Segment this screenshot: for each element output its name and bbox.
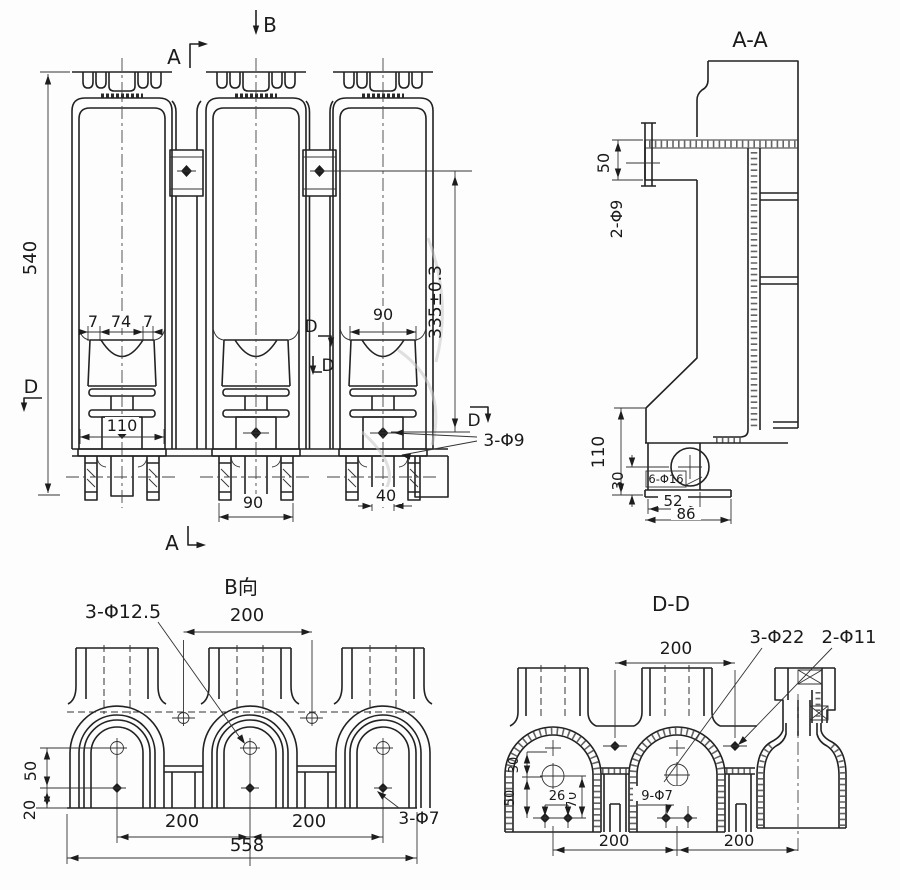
dd-bell xyxy=(757,668,846,854)
label-2phi9: 2-Φ9 xyxy=(607,200,626,239)
dim-90-bell: 90 xyxy=(373,305,393,324)
dim-50-aa: 50 xyxy=(594,153,613,173)
label-3phi22: 3-Φ22 xyxy=(749,627,804,648)
dim-40: 40 xyxy=(376,486,396,505)
dim-7-right: 7 xyxy=(143,312,153,331)
pole-3 xyxy=(327,58,439,508)
marker-b: B xyxy=(263,13,277,37)
section-dd-view: D-D 200 3-Φ22 2-Φ11 30 5 xyxy=(503,592,877,856)
dim-200-top-dd: 200 xyxy=(660,639,692,659)
dim-50-dd: 50 xyxy=(503,790,518,807)
front-view: B A A D D D D 540 7 74 7 110 90 xyxy=(20,10,525,555)
dim-200-bottom-left: 200 xyxy=(165,811,199,832)
dd-post-1 xyxy=(510,665,596,726)
dim-335: 335±0.3 xyxy=(426,265,446,339)
dim-200-top-b: 200 xyxy=(230,605,264,626)
title-dd: D-D xyxy=(652,592,690,616)
dim-90-foot: 90 xyxy=(243,493,263,512)
dim-540: 540 xyxy=(20,241,41,275)
link-web-2 xyxy=(303,101,336,449)
pole-2 xyxy=(200,58,312,508)
section-aa-view: A-A 50 2-Φ9 110 30 6-Φ16 52 86 xyxy=(589,28,798,524)
marker-d-left: D xyxy=(24,376,39,398)
label-3phi125: 3-Φ12.5 xyxy=(85,601,161,623)
b-arch-1 xyxy=(70,706,164,808)
b-arch-3 xyxy=(336,706,430,808)
base-plate xyxy=(72,449,448,456)
marker-d-mid-upper: D xyxy=(304,317,317,337)
dim-558: 558 xyxy=(230,835,264,856)
marker-d-right: D xyxy=(467,411,480,431)
label-3phi7: 3-Φ7 xyxy=(398,809,439,829)
b-dimensions: 200 3-Φ12.5 50 20 200 200 558 3-Φ7 xyxy=(20,601,440,861)
dim-86: 86 xyxy=(676,505,695,523)
b-arch-2 xyxy=(203,706,297,808)
view-b: B向 200 3-Φ12.5 50 20 200 200 558 xyxy=(20,575,440,866)
dim-20-b: 20 xyxy=(20,800,39,820)
pole-1 xyxy=(66,58,178,508)
marker-d-mid-lower: D xyxy=(321,356,334,376)
dim-200-dd-right: 200 xyxy=(724,831,755,850)
link-web-1 xyxy=(170,101,203,449)
marker-a-bottom: A xyxy=(165,531,179,555)
dim-74: 74 xyxy=(111,312,131,331)
dim-30-aa: 30 xyxy=(609,471,627,490)
engineering-drawing-sheet: B A A D D D D 540 7 74 7 110 90 xyxy=(0,0,900,890)
b-post-1 xyxy=(68,645,166,714)
dim-50-b: 50 xyxy=(21,761,40,781)
front-dimensions: 540 7 74 7 110 90 90 40 335±0.3 xyxy=(20,72,525,522)
label-6phi16: 6-Φ16 xyxy=(648,472,683,486)
b-post-3 xyxy=(334,645,432,714)
title-aa: A-A xyxy=(732,28,768,52)
dd-post-2 xyxy=(634,665,720,726)
dim-30-dd: 30 xyxy=(507,757,522,774)
dim-110: 110 xyxy=(107,416,138,435)
dim-200-dd-left: 200 xyxy=(599,831,630,850)
dim-200-bottom-right: 200 xyxy=(292,811,326,832)
dim-26: 26 xyxy=(549,789,566,804)
marker-a-top: A xyxy=(167,45,181,69)
label-2phi11: 2-Φ11 xyxy=(821,627,876,648)
dim-110-aa: 110 xyxy=(589,436,609,468)
dim-7-left: 7 xyxy=(88,312,98,331)
label-3phi9: 3-Φ9 xyxy=(483,431,524,451)
title-b: B向 xyxy=(224,575,258,599)
label-9phi7: 9-Φ7 xyxy=(641,789,672,804)
